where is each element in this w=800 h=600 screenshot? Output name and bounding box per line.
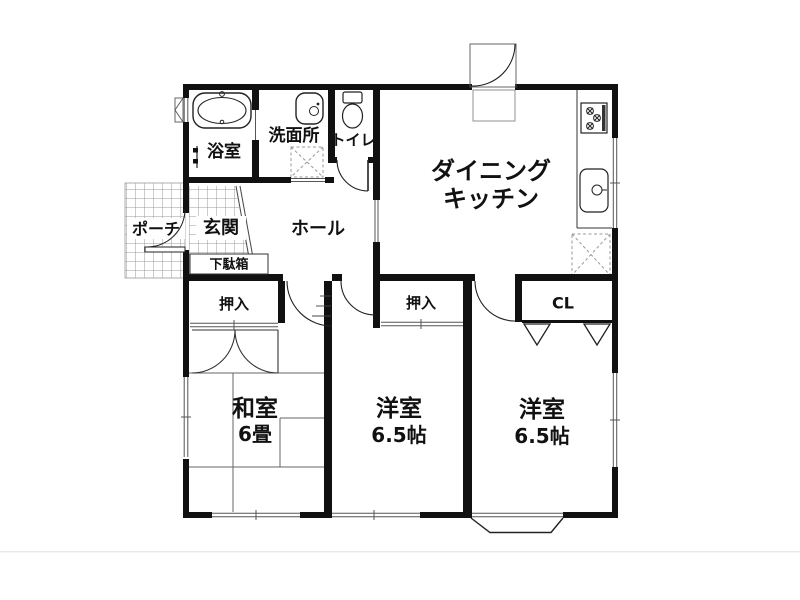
room-label-dk-line2: キッチン — [443, 185, 539, 213]
scan-edge-line — [0, 551, 800, 553]
room-label-youshitsu-right: 洋室 — [519, 396, 565, 423]
room-label-hall: ホール — [291, 219, 345, 240]
label-closet-washitsu: 押入 — [219, 295, 249, 313]
room-label-youshitsu-center: 洋室 — [376, 395, 422, 422]
label-closet-cl: CL — [552, 294, 574, 313]
room-label-porch: ポーチ — [132, 220, 180, 239]
label-shoe-cabinet: 下駄箱 — [209, 257, 248, 273]
room-label-entry: 玄関 — [203, 217, 239, 239]
room-label-washitsu: 和室 — [232, 395, 278, 422]
floorplan-svg: 浴室 洗面所 トイレ ダイニング キッチン ポーチ 玄関 ホール 下駄箱 押入 … — [0, 0, 800, 600]
room-label-bath: 浴室 — [207, 141, 241, 162]
room-size-youshitsu-right: 6.5帖 — [514, 424, 569, 448]
room-size-washitsu: 6畳 — [238, 422, 272, 446]
label-closet-center: 押入 — [406, 294, 436, 312]
room-label-washroom: 洗面所 — [269, 125, 320, 146]
floorplan-image: 浴室 洗面所 トイレ ダイニング キッチン ポーチ 玄関 ホール 下駄箱 押入 … — [0, 0, 800, 600]
room-label-dk-line1: ダイニング — [431, 157, 551, 185]
room-label-toilet: トイレ — [330, 131, 375, 149]
room-size-youshitsu-center: 6.5帖 — [371, 423, 426, 447]
